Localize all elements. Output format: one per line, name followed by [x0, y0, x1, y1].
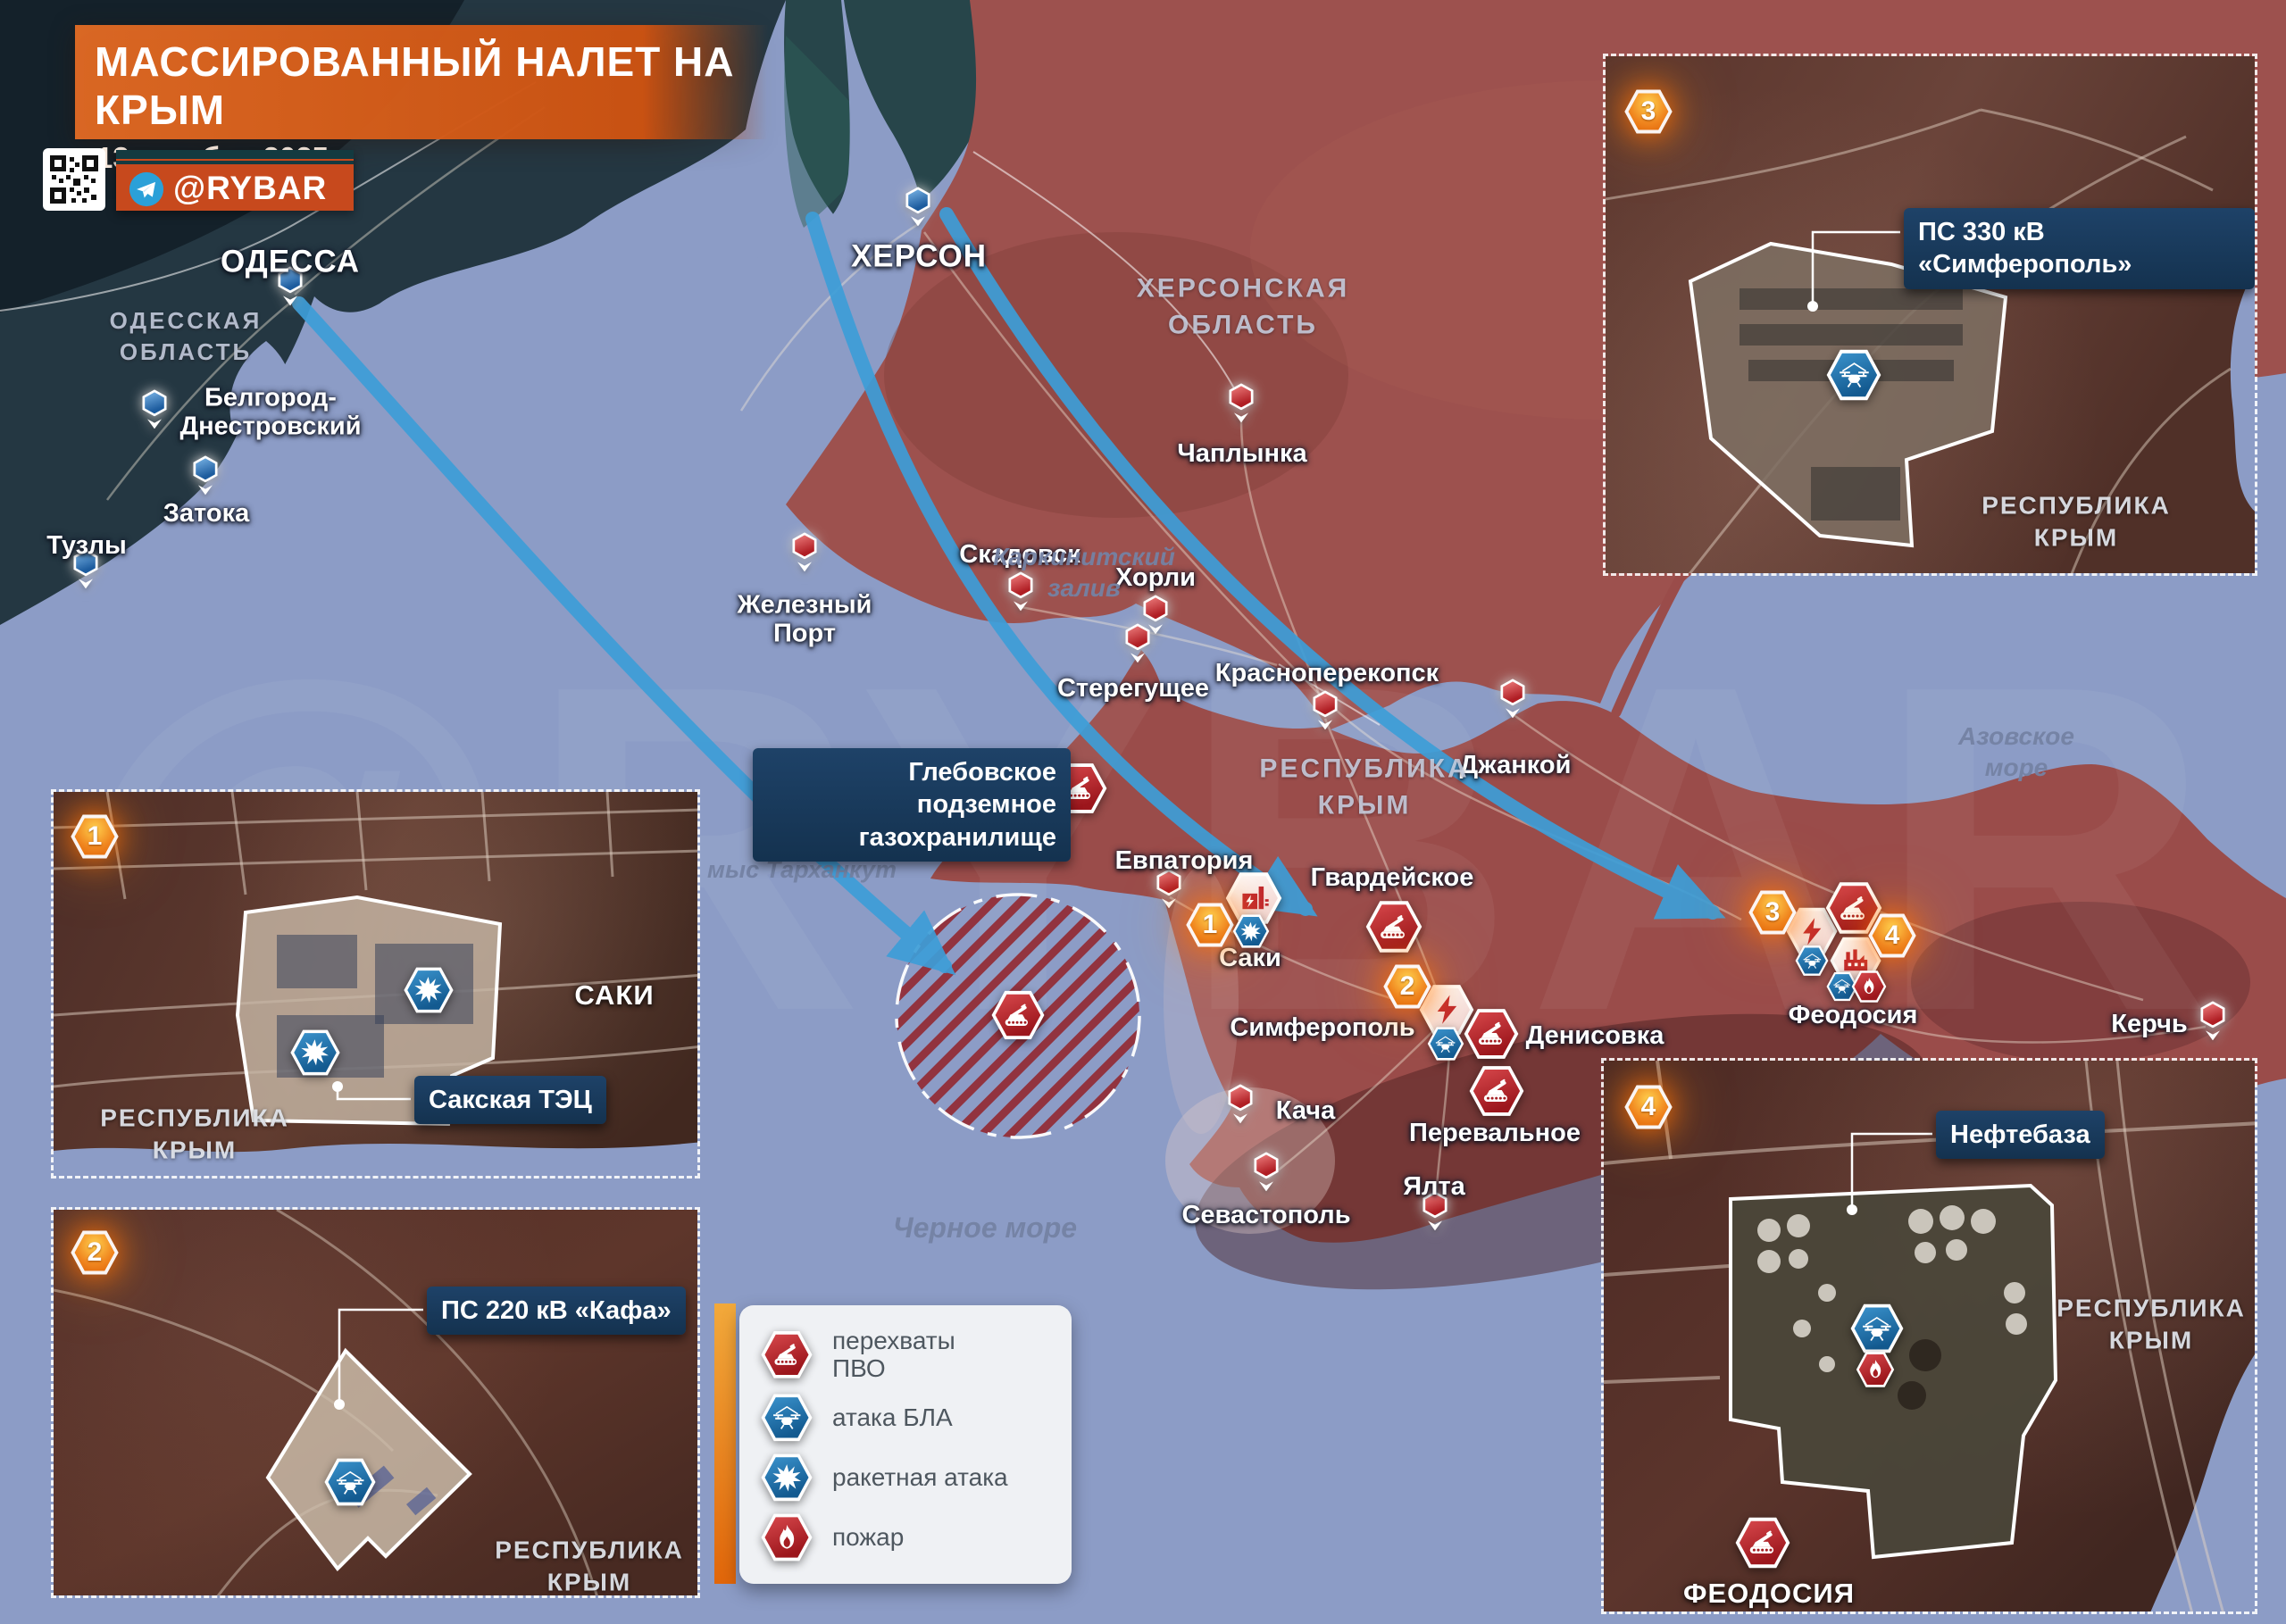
telegram-icon [129, 171, 164, 207]
missile-attack-icon [759, 1453, 814, 1503]
facility-callout: Нефтебаза [1936, 1111, 2105, 1159]
legend-label: атака БЛА [832, 1403, 953, 1431]
uav-attack-icon [759, 1393, 814, 1443]
inset-1-badge: 1 [69, 813, 121, 860]
intercept-zone-circle [897, 895, 1139, 1137]
air-defense-intercept-icon [1733, 1516, 1792, 1570]
brand-handle: @RYBAR [173, 170, 327, 207]
legend-label: ракетная атака [832, 1463, 1008, 1491]
missile-attack-icon [288, 1029, 342, 1077]
inset-4-badge: 4 [1623, 1084, 1674, 1130]
gas-storage-callout: Глебовское подземное газохранилище [753, 748, 1071, 862]
legend-label: пожар [832, 1523, 904, 1551]
inset-region-label: РЕСПУБЛИКА КРЫМ [100, 1103, 289, 1168]
inset-place-label: САКИ [574, 979, 654, 1012]
facility-callout: ПС 220 кВ «Кафа» [427, 1287, 686, 1335]
brand-bar: @RYBAR [116, 150, 354, 211]
fire-icon [1855, 1351, 1896, 1388]
inset-saki: 1 Сакская ТЭЦ САКИ РЕСПУБЛИКА КРЫМ [51, 789, 700, 1178]
air-defense-intercept-icon [759, 1329, 814, 1379]
infographic-map: @RYBAR [0, 0, 2286, 1624]
legend-item: ракетная атака [759, 1453, 1052, 1503]
legend-item: пожар [759, 1512, 1052, 1562]
inset-region-label: РЕСПУБЛИКА КРЫМ [1981, 490, 2171, 555]
inset-kafa: 2 ПС 220 кВ «Кафа» РЕСПУБЛИКА КРЫМ [51, 1207, 700, 1598]
facility-callout: Сакская ТЭЦ [414, 1076, 606, 1124]
title-banner: МАССИРОВАННЫЙ НАЛЕТ НА КРЫМ 13 октября 2… [75, 25, 768, 139]
legend-accent-bar [714, 1303, 736, 1584]
fire-icon [759, 1512, 814, 1562]
uav-attack-icon [1824, 348, 1883, 402]
legend-item: перехваты ПВО [759, 1327, 1052, 1383]
inset-3-badge: 3 [1623, 88, 1674, 135]
qr-code [43, 148, 105, 211]
legend-label: перехваты ПВО [832, 1327, 955, 1383]
inset-place-label: ФЕОДОСИЯ [1683, 1578, 1855, 1610]
page-title: МАССИРОВАННЫЙ НАЛЕТ НА КРЫМ [95, 37, 768, 134]
legend: перехваты ПВО атака БЛА ракетная атака п… [739, 1305, 1072, 1584]
inset-region-label: РЕСПУБЛИКА КРЫМ [495, 1535, 684, 1598]
inset-feodosia-oil-depot: 4 Нефтебаза ФЕОДОСИЯ РЕСПУБЛИКА КРЫМ [1601, 1058, 2257, 1614]
missile-attack-icon [402, 966, 455, 1014]
inset-2-badge: 2 [69, 1229, 121, 1276]
uav-attack-icon [1848, 1303, 1906, 1354]
uav-attack-icon [322, 1457, 378, 1507]
legend-item: атака БЛА [759, 1393, 1052, 1443]
inset-simferopol-substation: 3 ПС 330 кВ «Симферополь» РЕСПУБЛИКА КРЫ… [1603, 54, 2257, 576]
inset-region-label: РЕСПУБЛИКА КРЫМ [2057, 1293, 2246, 1358]
facility-callout: ПС 330 кВ «Симферополь» [1904, 208, 2255, 289]
